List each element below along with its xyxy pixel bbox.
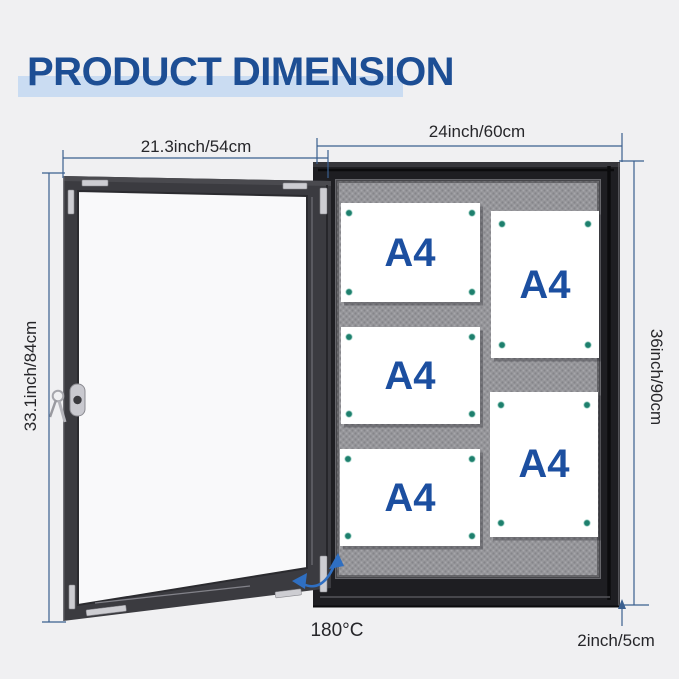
corner-bracket-icon <box>82 180 108 186</box>
push-pin-icon <box>585 342 591 348</box>
diagram-canvas: PRODUCT DIMENSION A4 <box>0 0 679 679</box>
corner-bracket-icon <box>68 190 74 214</box>
push-pin-icon <box>585 221 591 227</box>
dimension-label-board-width: 24inch/60cm <box>429 122 525 141</box>
pinned-paper: A4 <box>490 392 601 541</box>
pinned-paper: A4 <box>491 211 602 362</box>
glass-door-open <box>50 176 331 621</box>
push-pin-icon <box>469 334 475 340</box>
paper-size-label: A4 <box>518 442 570 486</box>
push-pin-icon <box>469 289 475 295</box>
product-dimension-figure: PRODUCT DIMENSION A4 <box>0 0 679 679</box>
title-block: PRODUCT DIMENSION <box>18 50 454 97</box>
push-pin-icon <box>584 402 590 408</box>
pinned-paper: A4 <box>340 449 483 550</box>
push-pin-icon <box>345 456 351 462</box>
board-frame-top-bevel <box>313 162 620 167</box>
paper-size-label: A4 <box>384 231 436 275</box>
push-pin-icon <box>498 402 504 408</box>
corner-bracket-icon <box>69 585 75 609</box>
door-swing-angle-label: 180°C <box>310 620 363 641</box>
paper-size-label: A4 <box>519 263 571 307</box>
push-pin-icon <box>469 210 475 216</box>
dimension-label-board-depth: 2inch/5cm <box>577 631 654 650</box>
dimension-label-door-height: 33.1inch/84cm <box>21 321 40 432</box>
keyhole <box>73 396 81 404</box>
corner-bracket-icon <box>283 183 307 189</box>
dimension-label-door-width: 21.3inch/54cm <box>141 137 252 156</box>
paper-size-label: A4 <box>384 476 436 520</box>
page-title: PRODUCT DIMENSION <box>27 50 454 94</box>
pinned-paper: A4 <box>341 203 483 306</box>
dimension-label-board-height: 36inch/90cm <box>647 329 666 425</box>
push-pin-icon <box>345 533 351 539</box>
hinge-icon <box>320 188 327 214</box>
push-pin-icon <box>469 411 475 417</box>
lock-icon <box>70 384 85 416</box>
push-pin-icon <box>469 533 475 539</box>
door-glass-panel <box>78 191 307 605</box>
push-pin-icon <box>346 334 352 340</box>
hinge-icon <box>320 556 327 592</box>
push-pin-icon <box>469 456 475 462</box>
push-pin-icon <box>584 520 590 526</box>
push-pin-icon <box>346 210 352 216</box>
paper-size-label: A4 <box>384 354 436 398</box>
pinned-paper: A4 <box>341 327 483 428</box>
push-pin-icon <box>499 221 505 227</box>
push-pin-icon <box>346 289 352 295</box>
push-pin-icon <box>499 342 505 348</box>
push-pin-icon <box>346 411 352 417</box>
push-pin-icon <box>498 520 504 526</box>
